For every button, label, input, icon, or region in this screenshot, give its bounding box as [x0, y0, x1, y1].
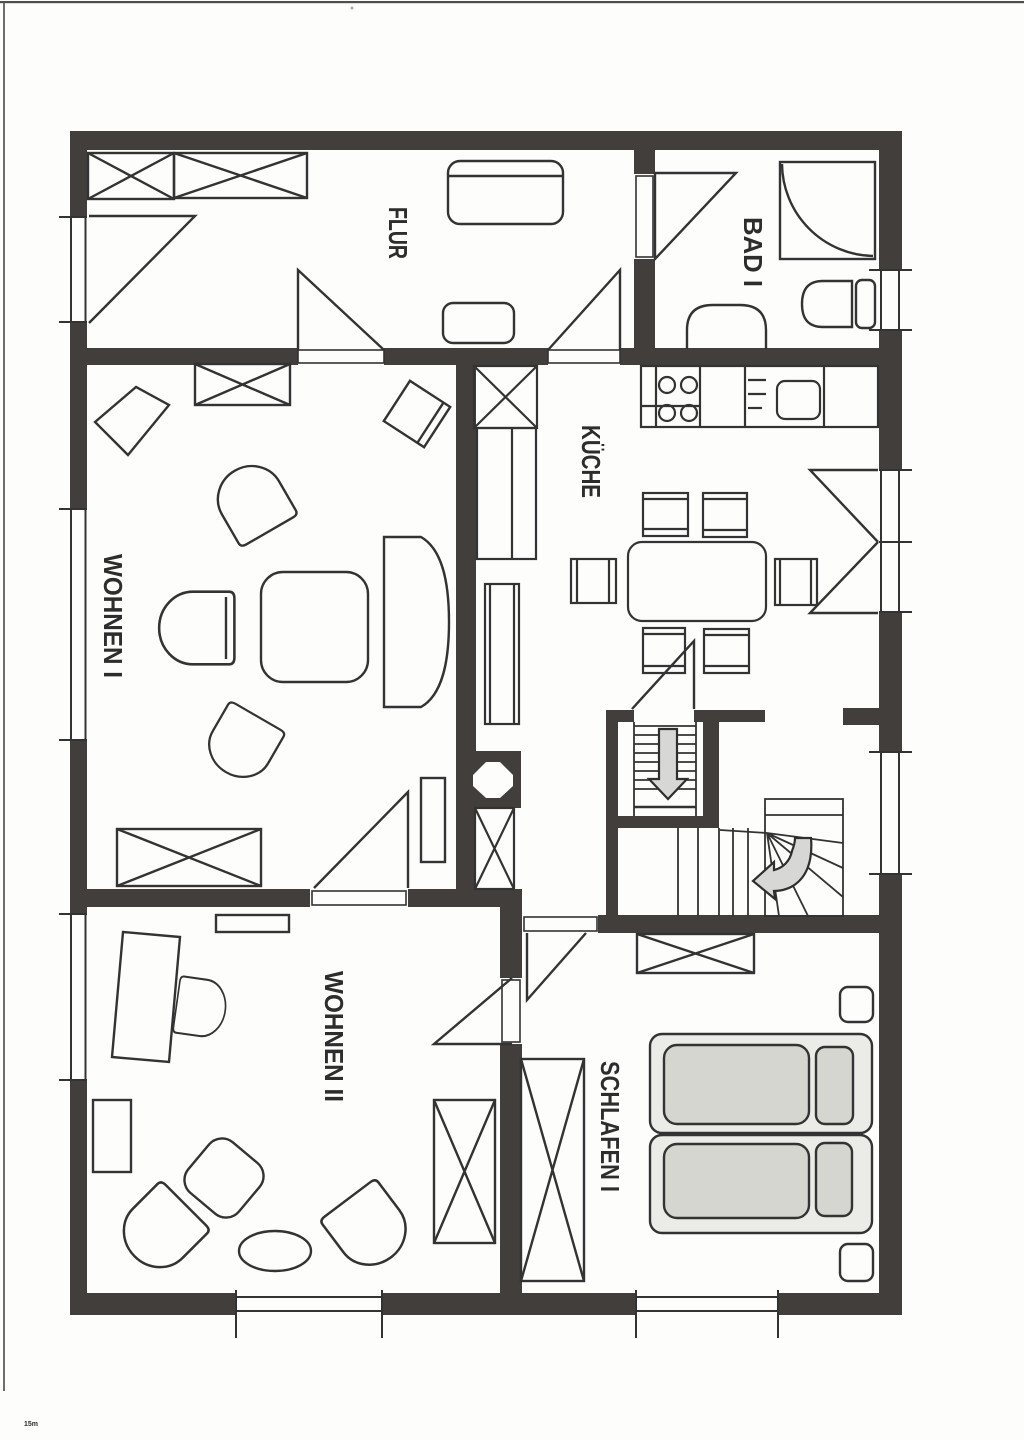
- svg-text:FLUR: FLUR: [383, 207, 413, 259]
- svg-text:KÜCHE: KÜCHE: [576, 425, 606, 498]
- svg-text:SCHLAFEN I: SCHLAFEN I: [595, 1061, 625, 1192]
- svg-text:15m: 15m: [24, 1421, 38, 1428]
- svg-text:WOHNEN II: WOHNEN II: [319, 971, 349, 1102]
- svg-text:BAD I: BAD I: [738, 217, 768, 287]
- svg-text:WOHNEN I: WOHNEN I: [98, 554, 128, 678]
